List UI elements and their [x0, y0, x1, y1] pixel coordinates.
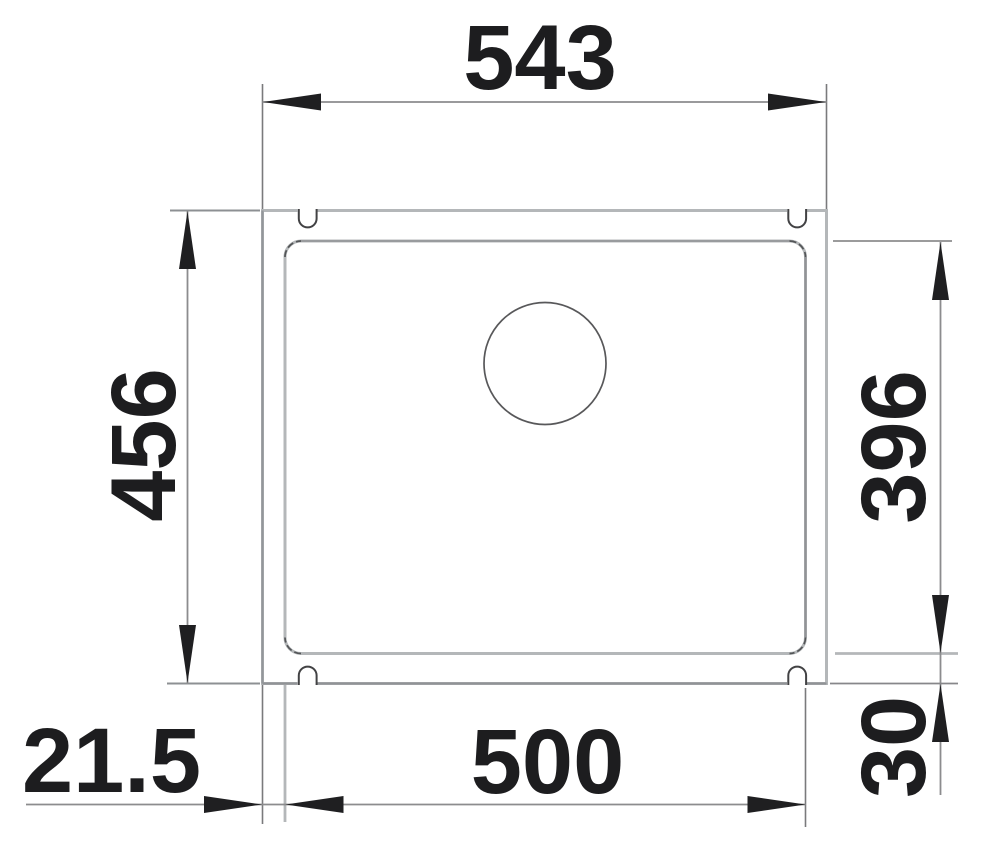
svg-text:500: 500 — [471, 711, 625, 813]
svg-text:396: 396 — [843, 370, 945, 524]
svg-text:456: 456 — [93, 368, 195, 522]
svg-text:21.5: 21.5 — [22, 710, 201, 812]
svg-text:543: 543 — [463, 7, 617, 109]
svg-text:30: 30 — [843, 696, 945, 798]
